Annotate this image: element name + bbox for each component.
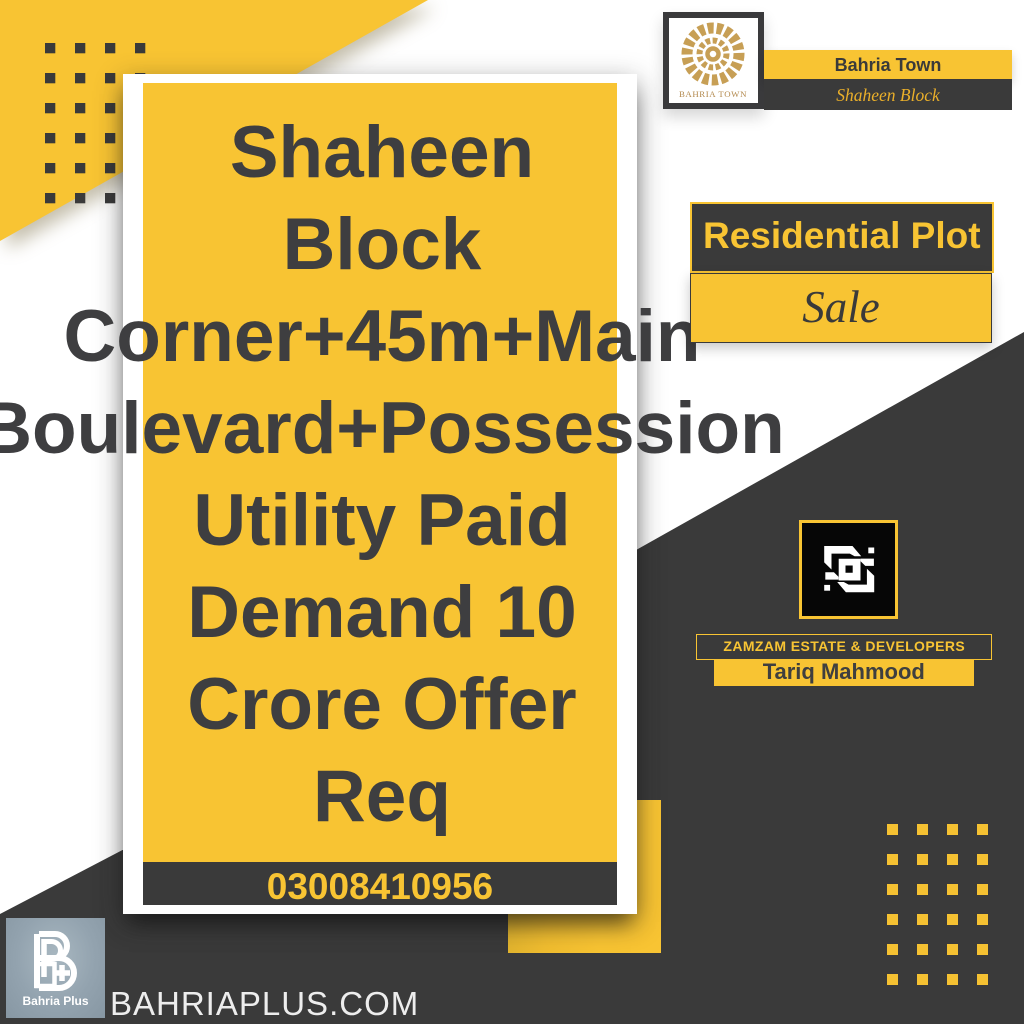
svg-text:BAHRIA TOWN: BAHRIA TOWN: [679, 89, 747, 99]
